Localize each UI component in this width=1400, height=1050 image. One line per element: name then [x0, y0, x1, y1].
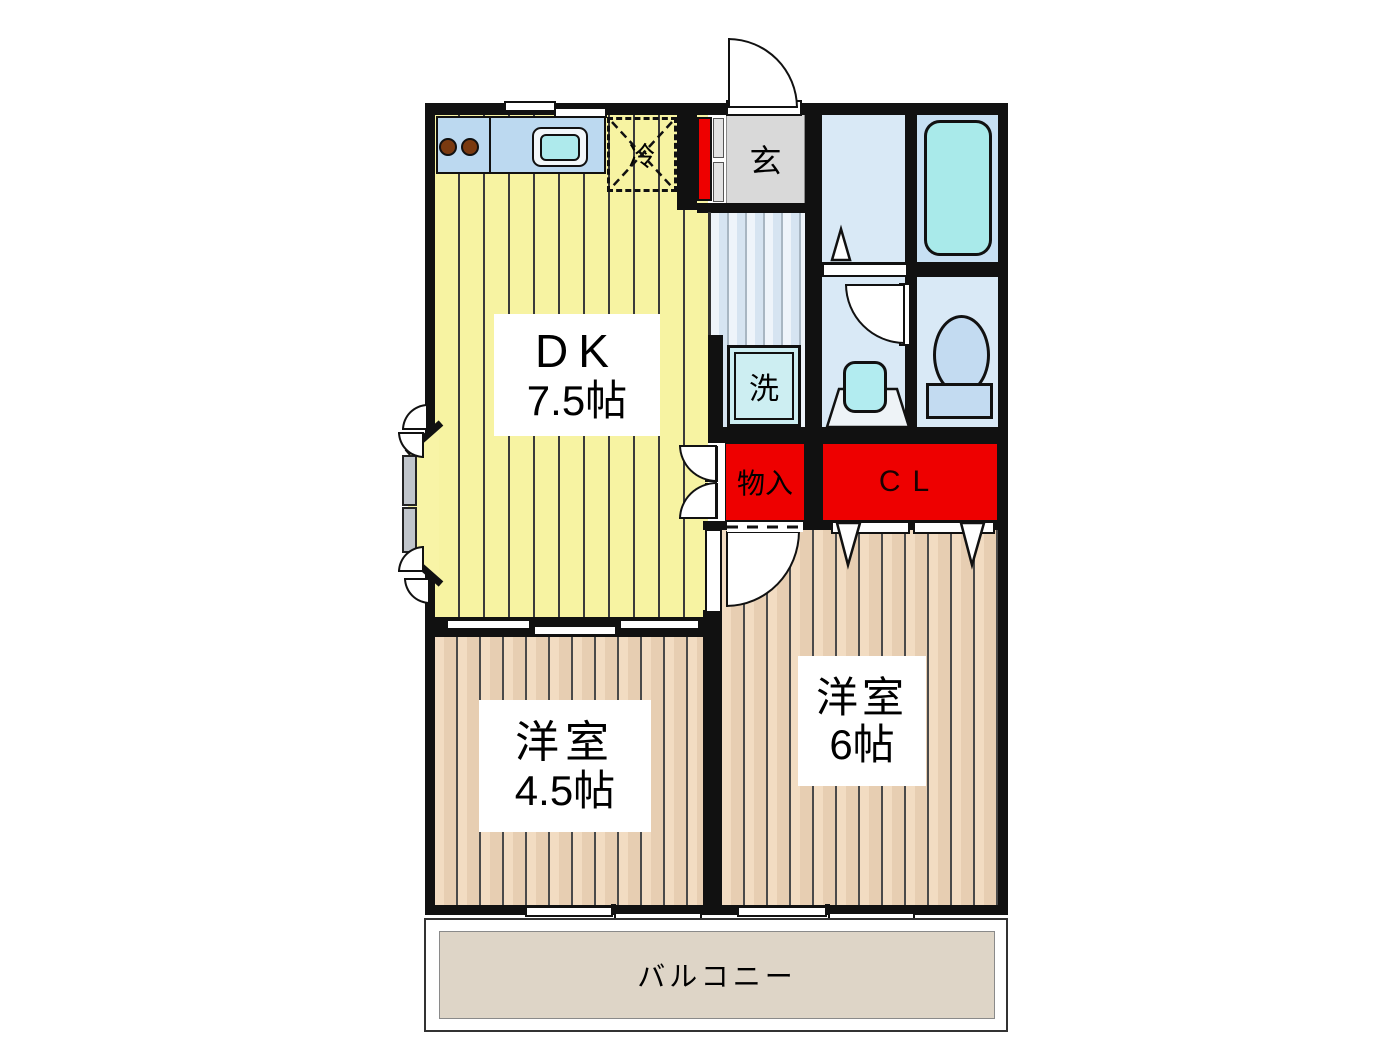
western-room-4-5-size: 4.5帖	[515, 767, 615, 814]
wall	[805, 113, 822, 443]
entrance-door-arc	[728, 38, 798, 108]
stove-burner-icon	[439, 138, 457, 156]
western-room-6-name: 洋室	[816, 674, 908, 721]
wall	[703, 617, 722, 915]
room6-door-leaf	[705, 529, 722, 613]
shoe-cabinet	[697, 117, 712, 201]
washing-machine-icon: 洗	[727, 345, 801, 427]
storage-box: 物入	[725, 443, 805, 521]
washer-label: 洗	[749, 364, 779, 408]
bath-door-threshold	[822, 263, 908, 277]
sliding-door-panel	[619, 619, 700, 630]
western-room-6-size: 6帖	[829, 721, 894, 768]
kitchen-counter-divider	[489, 116, 491, 174]
refrigerator-label-box: 冷	[607, 117, 677, 192]
bay-window-glazing	[403, 456, 416, 505]
balcony-window	[737, 906, 827, 917]
western-room-4-5-label: 洋室 4.5帖	[479, 700, 651, 832]
storage-label: 物入	[737, 462, 793, 502]
bay-window-flap	[398, 546, 424, 572]
stove-burner-icon	[461, 138, 479, 156]
wall	[905, 113, 917, 262]
sliding-door-panel	[533, 625, 617, 636]
western-room-6-label: 洋室 6帖	[798, 656, 926, 786]
wall	[805, 443, 822, 521]
entrance-label-box: 玄	[726, 113, 805, 205]
entrance-counter	[713, 118, 724, 158]
washbasin-icon	[843, 361, 887, 413]
bay-window-flap	[398, 432, 424, 458]
western-room-4-5-name: 洋室	[515, 718, 615, 767]
wall	[998, 103, 1008, 915]
balcony: バルコニー	[424, 918, 1008, 1032]
kitchen-sink-basin-icon	[540, 134, 580, 161]
closet-label: CL	[879, 465, 941, 499]
balcony-window	[525, 906, 613, 917]
wall	[425, 103, 435, 915]
refrigerator-label: 冷	[629, 135, 656, 174]
wall	[708, 335, 723, 433]
bathroom-anteroom-floor	[822, 113, 905, 262]
bay-window-flap	[404, 578, 430, 604]
bathtub-icon	[924, 120, 992, 256]
entrance-counter	[713, 162, 724, 202]
closet-sliding-door	[831, 521, 910, 534]
entrance-label: 玄	[749, 136, 781, 182]
kitchen-window	[504, 101, 556, 112]
toilet-tank-icon	[926, 383, 993, 419]
bay-window-flap	[402, 404, 428, 430]
balcony-label: バルコニー	[637, 955, 796, 995]
bay-window-glazing	[403, 508, 416, 552]
closet-box: CL	[822, 443, 998, 521]
dk-room-name: DK	[535, 326, 619, 378]
wall	[708, 427, 1001, 443]
floorplan-canvas: 物入 CL 冷 玄 洗	[0, 0, 1400, 1050]
sliding-door-panel	[446, 619, 531, 630]
dk-room-size: 7.5帖	[527, 377, 627, 424]
kitchen-window	[554, 107, 607, 118]
closet-sliding-door	[913, 521, 995, 534]
dk-room-label: DK 7.5帖	[494, 314, 660, 436]
wall	[677, 113, 697, 210]
